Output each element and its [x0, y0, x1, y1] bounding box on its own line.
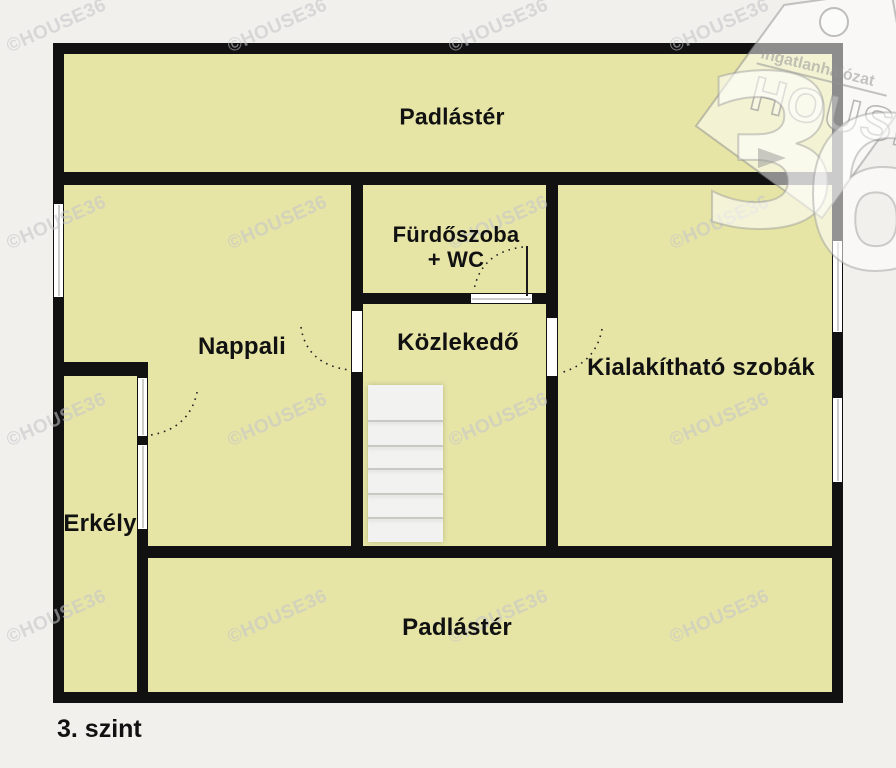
room-label-kozlekedo: Közlekedő: [397, 329, 519, 357]
floor-level-label: 3. szint: [57, 715, 142, 744]
door-opening-kialakithato: [546, 317, 558, 377]
balcony-window: [137, 444, 148, 530]
logo-tag-hole: [820, 8, 848, 36]
room-label-erkely: Erkély: [63, 510, 136, 538]
room-label-furdoszoba: Fürdőszoba + WC: [393, 222, 520, 272]
stair-tread-line: [368, 468, 443, 470]
stair-tread-line: [368, 493, 443, 495]
window-right-wall-upper: [832, 240, 843, 333]
wall-middle-band-bottom: [137, 546, 843, 558]
door-opening-nappali: [351, 310, 363, 373]
window-right-wall-lower: [832, 397, 843, 483]
room-label-nappali: Nappali: [198, 333, 286, 361]
room-label-padlaster-top: Padlástér: [399, 104, 504, 131]
room-label-furdoszoba-line1: Fürdőszoba: [393, 222, 520, 247]
room-label-padlaster-bottom: Padlástér: [402, 614, 512, 642]
stair-tread-line: [368, 517, 443, 519]
staircase: [368, 385, 443, 542]
wall-attic-top-bottom: [53, 172, 843, 185]
wall-outer-bottom: [53, 692, 843, 703]
window-left-wall: [53, 203, 64, 298]
wall-balcony-top: [53, 362, 148, 376]
wall-outer-top: [53, 43, 843, 54]
balcony-window-mullion: [137, 437, 148, 444]
door-opening-bathroom: [470, 293, 533, 304]
room-label-furdoszoba-line2: + WC: [393, 247, 520, 272]
bathroom-door-leaf: [526, 246, 528, 296]
room-label-kialakithato: Kialakítható szobák: [587, 354, 815, 382]
wall-outer-right: [832, 43, 843, 703]
floor-plan-page: Padlástér Nappali Fürdőszoba + WC Közlek…: [0, 0, 896, 768]
stair-tread-line: [368, 420, 443, 422]
stair-tread-line: [368, 445, 443, 447]
balcony-door-opening: [137, 377, 148, 437]
